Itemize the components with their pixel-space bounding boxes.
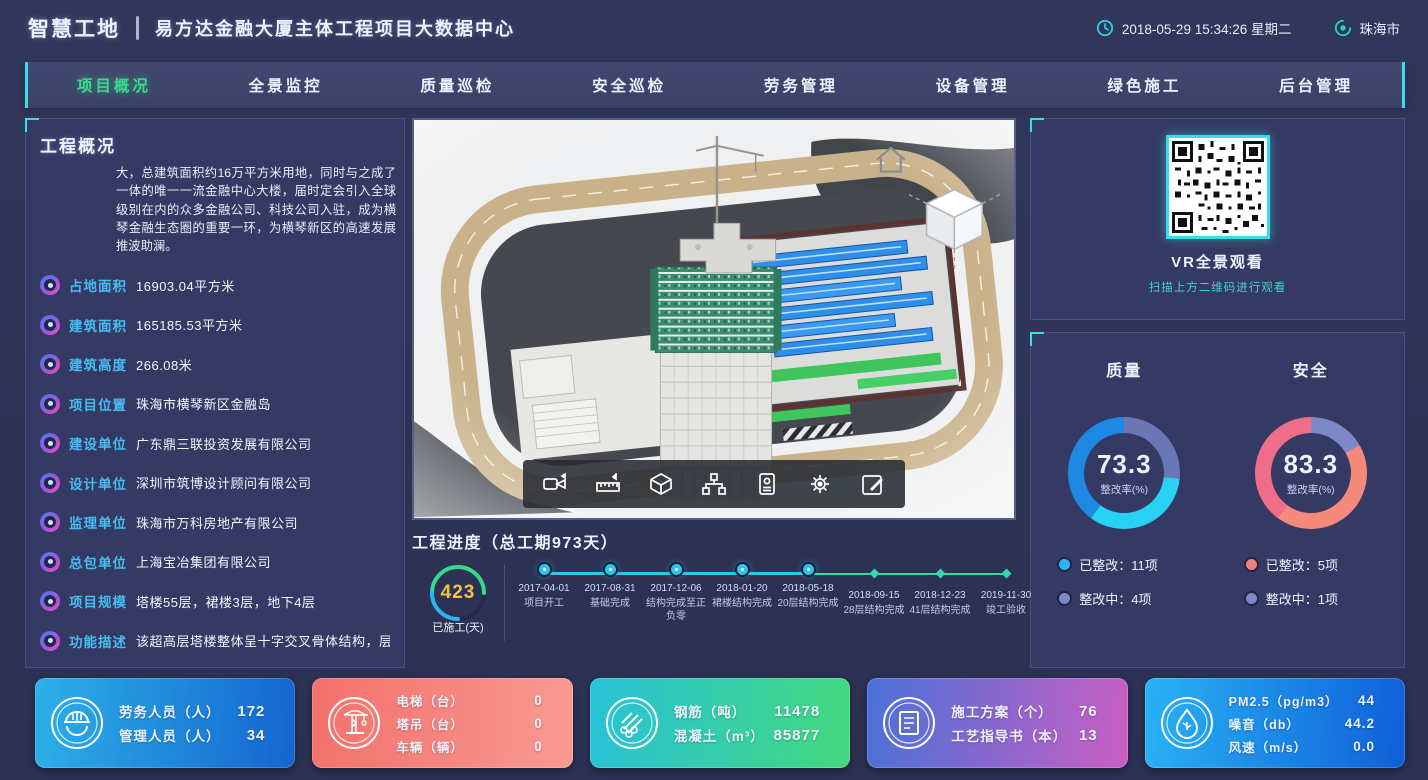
progress-timeline: 423 已施工(天) 2017-04-01项目开工 2017-08-31基础完成… xyxy=(412,563,1016,641)
quality-legend: 已整改：11项 整改中：4项 xyxy=(1059,555,1189,608)
stat-row: 管理人员（人）34 xyxy=(119,725,279,745)
center-column: 工程进度（总工期973天） 423 已施工(天) 2017-04-01项目开工 xyxy=(412,118,1016,668)
milestone-date: 2017-08-31 xyxy=(584,583,635,594)
quality-donut-chart: 73.3 整改率(%) xyxy=(1068,417,1180,529)
tab-admin[interactable]: 后台管理 xyxy=(1230,62,1402,108)
edit-icon[interactable] xyxy=(853,467,893,501)
milestone-date: 2018-01-20 xyxy=(716,583,767,594)
milestone[interactable]: 2019-11-30竣工验收 xyxy=(973,563,1039,623)
list-item: 设计单位深圳市筑博设计顾问有限公司 xyxy=(40,463,390,503)
bim-3d-scene xyxy=(414,120,1014,517)
project-overview-panel: 工程概况 大，总建筑面积约16万平方米用地，同时与之成了一体的唯一一流金融中心大… xyxy=(25,118,405,668)
stat-label: 风速（m/s） xyxy=(1229,737,1308,756)
stat-row: 车辆（辆）0 xyxy=(396,737,556,756)
datetime-text: 2018-05-29 15:34:26 星期二 xyxy=(1122,18,1292,38)
safety-title: 安全 xyxy=(1293,357,1329,381)
stat-value: 0.0 xyxy=(1353,739,1389,754)
milestone-marker xyxy=(605,564,616,575)
milestone-marker xyxy=(671,564,682,575)
item-value: 广东鼎三联投资发展有限公司 xyxy=(136,434,312,453)
safety-gauge-label: 整改率(%) xyxy=(1287,482,1335,497)
stat-label: 劳务人员（人） xyxy=(119,701,221,721)
bullet-icon xyxy=(40,394,60,414)
environment-stat-card[interactable]: PM2.5（pg/m3）44 噪音（db）44.2 风速（m/s）0.0 xyxy=(1145,678,1405,768)
overview-description: 大，总建筑面积约16万平方米用地，同时与之成了一体的唯一一流金融中心大楼，届时定… xyxy=(116,164,396,255)
list-item: 项目位置珠海市横琴新区金融岛 xyxy=(40,384,390,424)
stat-value: 0 xyxy=(534,693,557,708)
bullet-icon xyxy=(40,433,60,453)
stat-label: 施工方案（个） xyxy=(951,701,1053,721)
legend-item: 已整改：5项 xyxy=(1246,555,1376,574)
timeline-track: 2017-04-01项目开工 2017-08-31基础完成 2017-12-06… xyxy=(511,563,1039,623)
document-icon xyxy=(881,695,937,751)
structure-icon[interactable] xyxy=(694,467,734,501)
item-value: 珠海市横琴新区金融岛 xyxy=(136,394,271,413)
milestone-date: 2018-09-15 xyxy=(848,590,899,601)
stat-row: 风速（m/s）0.0 xyxy=(1229,737,1389,756)
bullet-icon xyxy=(40,354,60,374)
stat-value: 76 xyxy=(1079,703,1112,720)
bullet-icon xyxy=(40,275,60,295)
milestone-marker xyxy=(539,564,550,575)
legend-dot xyxy=(1246,593,1257,604)
vr-subtitle[interactable]: 扫描上方二维码进行观看 xyxy=(1149,279,1287,295)
tab-project-overview[interactable]: 项目概况 xyxy=(28,62,200,108)
days-done-badge: 423 已施工(天) xyxy=(412,563,504,635)
milestone-marker xyxy=(803,564,814,575)
safety-value: 83.3 xyxy=(1283,449,1338,480)
stat-label: 混凝土（m³） xyxy=(674,725,765,745)
list-item: 总包单位上海宝冶集团有限公司 xyxy=(40,542,390,582)
item-label: 建设单位 xyxy=(69,433,127,453)
main-nav: 项目概况 全景监控 质量巡检 安全巡检 劳务管理 设备管理 绿色施工 后台管理 xyxy=(25,62,1405,108)
stat-label: 电梯（台） xyxy=(396,691,464,710)
bullet-icon xyxy=(40,473,60,493)
video-camera-icon[interactable] xyxy=(535,467,575,501)
timeline-divider xyxy=(504,565,505,641)
bim-model-view[interactable] xyxy=(412,118,1016,520)
item-value: 16903.04平方米 xyxy=(136,276,235,295)
item-value: 塔楼55层，裙楼3层，地下4层 xyxy=(136,592,315,611)
item-label: 总包单位 xyxy=(69,552,127,572)
item-label: 功能描述 xyxy=(69,631,127,651)
bullet-icon xyxy=(40,631,60,651)
list-item: 建设单位广东鼎三联投资发展有限公司 xyxy=(40,423,390,463)
milestone-date: 2019-11-30 xyxy=(981,590,1031,601)
overview-title: 工程概况 xyxy=(40,132,390,157)
milestone-date: 2018-12-23 xyxy=(914,590,965,601)
legend-dot xyxy=(1246,559,1257,570)
stat-row: 塔吊（台）0 xyxy=(396,714,556,733)
milestone-label: 20层结构完成 xyxy=(775,597,841,610)
legend-dot xyxy=(1059,559,1070,570)
list-item: 监理单位珠海市万科房地产有限公司 xyxy=(40,502,390,542)
header: 智慧工地 易方达金融大厦主体工程项目大数据中心 2018-05-29 15:34… xyxy=(0,0,1428,56)
legend-label: 整改中：4项 xyxy=(1079,589,1151,608)
location-icon xyxy=(1334,19,1352,37)
tower-crane-icon xyxy=(326,695,382,751)
tab-safety-inspection[interactable]: 安全巡检 xyxy=(543,62,715,108)
eco-drop-icon xyxy=(1159,695,1215,751)
labor-stat-card[interactable]: 劳务人员（人）172 管理人员（人）34 xyxy=(35,678,295,768)
item-value: 该超高层塔楼整体呈十字交叉骨体结构，层高为 xyxy=(136,631,390,650)
id-card-icon[interactable] xyxy=(747,467,787,501)
item-value: 深圳市筑博设计顾问有限公司 xyxy=(136,473,312,492)
location-group: 珠海市 xyxy=(1334,18,1401,38)
item-value: 266.08米 xyxy=(136,355,192,374)
inspection-panel: 质量 73.3 整改率(%) 已整改：11项 整改中：4项 安全 83.3 整改… xyxy=(1030,332,1405,668)
title-divider xyxy=(136,16,139,40)
item-value: 珠海市万科房地产有限公司 xyxy=(136,513,298,532)
list-item: 功能描述该超高层塔楼整体呈十字交叉骨体结构，层高为 xyxy=(40,621,390,661)
stat-value: 44.2 xyxy=(1345,716,1389,731)
stat-label: PM2.5（pg/m3） xyxy=(1229,691,1339,710)
stat-value: 34 xyxy=(247,727,280,744)
tab-quality-inspection[interactable]: 质量巡检 xyxy=(372,62,544,108)
tab-equipment-management[interactable]: 设备管理 xyxy=(887,62,1059,108)
stat-cards: 劳务人员（人）172 管理人员（人）34 电梯（台）0 塔吊（台）0 车辆（辆）… xyxy=(35,678,1405,768)
stat-label: 噪音（db） xyxy=(1229,714,1300,733)
milestone-label: 项目开工 xyxy=(511,597,577,610)
legend-item: 整改中：4项 xyxy=(1059,589,1189,608)
stat-value: 0 xyxy=(534,716,557,731)
milestone-date: 2017-04-01 xyxy=(518,583,569,594)
model-toolbar xyxy=(523,460,905,508)
worker-helmet-icon xyxy=(49,695,105,751)
list-item: 占地面积16903.04平方米 xyxy=(40,265,390,305)
milestone-label: 裙楼结构完成 xyxy=(709,597,775,610)
milestone-date: 2017-12-06 xyxy=(650,583,701,594)
smart-site-dashboard: 智慧工地 易方达金融大厦主体工程项目大数据中心 2018-05-29 15:34… xyxy=(0,0,1428,780)
milestone[interactable]: 2018-01-20裙楼结构完成 xyxy=(709,563,775,623)
equipment-stat-card[interactable]: 电梯（台）0 塔吊（台）0 车辆（辆）0 xyxy=(312,678,572,768)
milestone-marker xyxy=(869,569,879,579)
datetime-group: 2018-05-29 15:34:26 星期二 xyxy=(1096,18,1292,38)
tab-labor-management[interactable]: 劳务管理 xyxy=(715,62,887,108)
item-label: 建筑面积 xyxy=(69,315,127,335)
stat-row: 劳务人员（人）172 xyxy=(119,701,279,721)
milestone-marker xyxy=(1001,569,1011,579)
material-stat-card[interactable]: 钢筋（吨）11478 混凝土（m³）85877 xyxy=(590,678,850,768)
stat-row: 电梯（台）0 xyxy=(396,691,556,710)
milestone-label: 结构完成至正负零 xyxy=(643,597,709,623)
stat-value: 44 xyxy=(1358,693,1389,708)
quality-gauge-label: 整改率(%) xyxy=(1100,482,1148,497)
brand-logo-text: 智慧工地 xyxy=(28,13,120,43)
cube-icon[interactable] xyxy=(641,467,681,501)
item-value: 165185.53平方米 xyxy=(136,315,242,334)
bullet-icon xyxy=(40,315,60,335)
stat-row: 施工方案（个）76 xyxy=(951,701,1111,721)
stat-value: 11478 xyxy=(774,703,834,720)
legend-label: 整改中：1项 xyxy=(1266,589,1338,608)
city-text: 珠海市 xyxy=(1360,18,1401,38)
quality-title: 质量 xyxy=(1106,357,1142,381)
stat-row: PM2.5（pg/m3）44 xyxy=(1229,691,1389,710)
days-done-value: 423 xyxy=(428,563,488,623)
bullet-icon xyxy=(40,591,60,611)
milestone[interactable]: 2017-12-06结构完成至正负零 xyxy=(643,563,709,623)
milestone-marker xyxy=(935,569,945,579)
legend-label: 已整改：11项 xyxy=(1079,555,1158,574)
milestone-label: 28层结构完成 xyxy=(841,604,907,617)
milestone-marker xyxy=(737,564,748,575)
tab-panorama-monitor[interactable]: 全景监控 xyxy=(200,62,372,108)
gear-icon[interactable] xyxy=(800,467,840,501)
item-label: 建筑高度 xyxy=(69,354,127,374)
milestone[interactable]: 2018-09-1528层结构完成 xyxy=(841,563,907,623)
list-item: 建筑高度266.08米 xyxy=(40,344,390,384)
vr-title: VR全景观看 xyxy=(1171,251,1264,272)
page-title: 易方达金融大厦主体工程项目大数据中心 xyxy=(155,15,515,41)
measure-icon[interactable] xyxy=(588,467,628,501)
stat-label: 工艺指导书（本） xyxy=(951,725,1067,745)
legend-item: 已整改：11项 xyxy=(1059,555,1189,574)
milestone[interactable]: 2018-05-1820层结构完成 xyxy=(775,563,841,623)
list-item: 建筑面积165185.53平方米 xyxy=(40,305,390,345)
item-label: 项目位置 xyxy=(69,394,127,414)
item-label: 设计单位 xyxy=(69,473,127,493)
milestone-label: 竣工验收 xyxy=(973,604,1039,617)
milestone-label: 基础完成 xyxy=(577,597,643,610)
rebar-icon xyxy=(604,695,660,751)
tab-green-construction[interactable]: 绿色施工 xyxy=(1059,62,1231,108)
stat-label: 钢筋（吨） xyxy=(674,701,747,721)
safety-gauge-section: 安全 83.3 整改率(%) 已整改：5项 整改中：1项 xyxy=(1218,333,1405,667)
progress-title: 工程进度（总工期973天） xyxy=(412,529,1016,553)
legend-label: 已整改：5项 xyxy=(1266,555,1338,574)
stat-row: 工艺指导书（本）13 xyxy=(951,725,1111,745)
stat-value: 0 xyxy=(534,739,557,754)
overview-list: 占地面积16903.04平方米 建筑面积165185.53平方米 建筑高度266… xyxy=(40,265,390,660)
quality-value: 73.3 xyxy=(1097,449,1152,480)
safety-donut-chart: 83.3 整改率(%) xyxy=(1255,417,1367,529)
milestone[interactable]: 2017-04-01项目开工 xyxy=(511,563,577,623)
stat-row: 钢筋（吨）11478 xyxy=(674,701,834,721)
stat-label: 管理人员（人） xyxy=(119,725,221,745)
vr-panel: VR全景观看 扫描上方二维码进行观看 xyxy=(1030,118,1405,320)
legend-dot xyxy=(1059,593,1070,604)
item-label: 占地面积 xyxy=(69,275,127,295)
list-item: 项目规模塔楼55层，裙楼3层，地下4层 xyxy=(40,581,390,621)
stat-row: 混凝土（m³）85877 xyxy=(674,725,834,745)
legend-item: 整改中：1项 xyxy=(1246,589,1376,608)
safety-legend: 已整改：5项 整改中：1项 xyxy=(1246,555,1376,608)
stat-value: 85877 xyxy=(774,727,835,744)
stat-label: 车辆（辆） xyxy=(396,737,464,756)
clock-icon xyxy=(1096,19,1114,37)
stat-value: 172 xyxy=(237,703,279,720)
document-stat-card[interactable]: 施工方案（个）76 工艺指导书（本）13 xyxy=(867,678,1127,768)
item-value: 上海宝冶集团有限公司 xyxy=(136,552,271,571)
qr-code xyxy=(1166,135,1270,239)
item-label: 监理单位 xyxy=(69,512,127,532)
milestone[interactable]: 2018-12-2341层结构完成 xyxy=(907,563,973,623)
milestone[interactable]: 2017-08-31基础完成 xyxy=(577,563,643,623)
stat-value: 13 xyxy=(1079,727,1112,744)
stat-label: 塔吊（台） xyxy=(396,714,464,733)
quality-gauge-section: 质量 73.3 整改率(%) 已整改：11项 整改中：4项 xyxy=(1031,333,1218,667)
bullet-icon xyxy=(40,512,60,532)
stat-row: 噪音（db）44.2 xyxy=(1229,714,1389,733)
milestone-label: 41层结构完成 xyxy=(907,604,973,617)
milestone-date: 2018-05-18 xyxy=(782,583,833,594)
item-label: 项目规模 xyxy=(69,591,127,611)
bullet-icon xyxy=(40,552,60,572)
